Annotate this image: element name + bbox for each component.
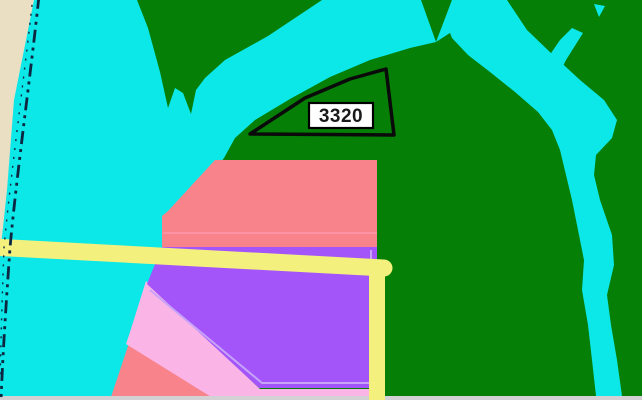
map-canvas: 3320 <box>0 0 642 400</box>
parcel-label-text: 3320 <box>319 106 363 127</box>
map-viewport: 3320 <box>0 0 642 400</box>
map-bottom-edge-strip <box>0 396 642 400</box>
